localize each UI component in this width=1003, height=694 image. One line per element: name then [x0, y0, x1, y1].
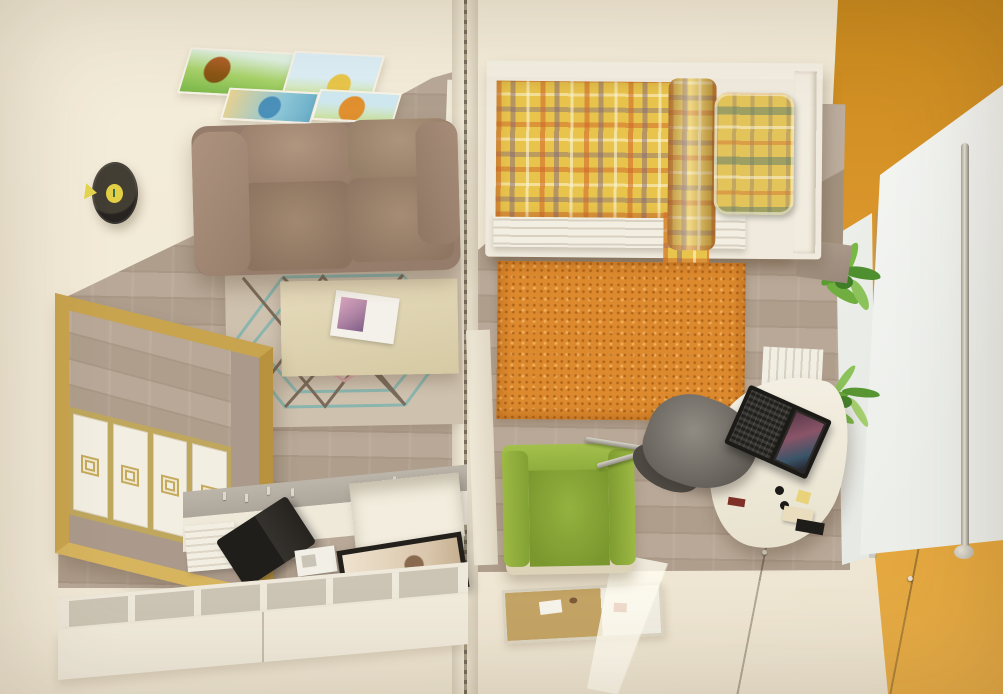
sofa-back-cushion — [239, 122, 353, 187]
window — [836, 85, 1003, 565]
door-motif — [161, 474, 179, 496]
plaid-duvet — [495, 81, 686, 219]
small-object — [569, 597, 577, 603]
armchair-armrest — [502, 451, 530, 567]
sofa — [191, 120, 461, 277]
blanket-fold-shading — [667, 78, 716, 250]
plaid-pillow — [714, 93, 795, 216]
clock-hand — [113, 189, 115, 197]
telephone — [294, 545, 337, 576]
bed — [485, 61, 823, 260]
bed-frame-rail — [487, 61, 823, 80]
clock-ornament — [84, 183, 98, 201]
armchair-seat — [528, 469, 610, 566]
vinyl-record-clock — [92, 162, 138, 224]
desk-knob — [775, 486, 784, 495]
paper-card — [539, 599, 562, 615]
magazine-picture — [337, 297, 367, 332]
folded-blanket — [667, 78, 716, 250]
kids-poster-3 — [220, 88, 320, 125]
telephone-keypad — [301, 554, 317, 568]
sofa-seat-cushion — [241, 180, 353, 271]
shelf-seam — [262, 612, 264, 662]
bed-headboard — [793, 71, 817, 253]
coffee-table — [280, 278, 459, 376]
sofa-armrest — [415, 122, 460, 245]
sofa-armrest — [191, 131, 251, 276]
sideboard-door — [113, 423, 148, 528]
magazine — [330, 290, 400, 344]
curtain-pole — [961, 143, 969, 553]
door-motif — [81, 455, 99, 477]
armchair-armrest — [608, 449, 636, 565]
sideboard-door — [73, 413, 108, 518]
apartment-render — [0, 0, 1003, 694]
door-motif — [121, 464, 139, 486]
